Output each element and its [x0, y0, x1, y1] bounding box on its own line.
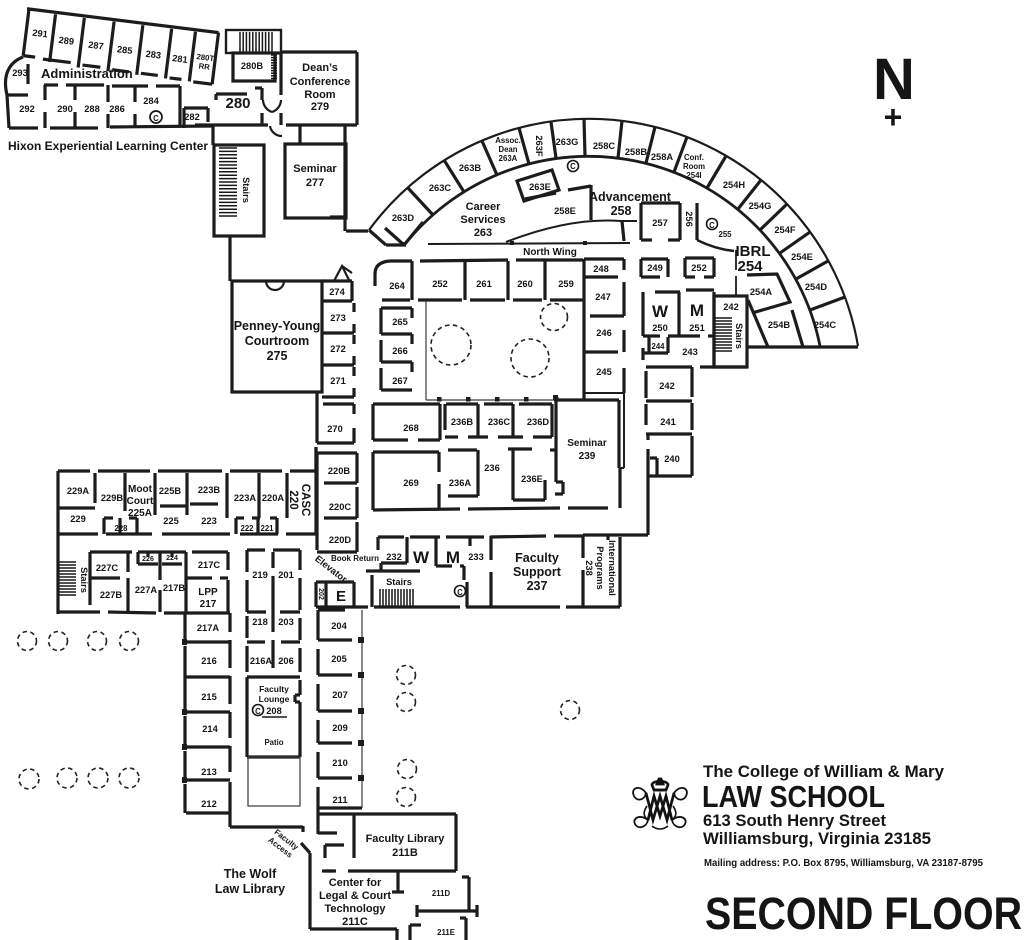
svg-text:205: 205	[331, 654, 347, 664]
svg-text:279: 279	[311, 101, 329, 113]
svg-text:Stairs: Stairs	[79, 567, 89, 593]
svg-text:281: 281	[172, 53, 189, 65]
svg-text:Court: Court	[127, 496, 154, 507]
svg-text:258: 258	[611, 204, 632, 218]
svg-text:Law Library: Law Library	[215, 882, 285, 896]
svg-text:258B: 258B	[625, 147, 648, 157]
svg-text:263F: 263F	[534, 135, 544, 157]
svg-text:217B: 217B	[163, 583, 186, 593]
svg-text:C: C	[457, 588, 463, 597]
svg-text:Room: Room	[683, 162, 705, 171]
svg-text:263C: 263C	[429, 183, 452, 193]
svg-text:229: 229	[70, 514, 86, 524]
svg-text:The Wolf: The Wolf	[224, 867, 277, 881]
svg-text:229B: 229B	[101, 493, 124, 503]
svg-text:254G: 254G	[749, 201, 772, 211]
svg-text:Moot: Moot	[128, 484, 153, 495]
svg-text:Room: Room	[304, 89, 335, 101]
svg-text:254A: 254A	[750, 287, 773, 297]
svg-text:280B: 280B	[241, 61, 264, 71]
svg-text:223A: 223A	[234, 493, 257, 503]
svg-text:224: 224	[166, 555, 178, 562]
svg-text:221: 221	[260, 524, 274, 533]
svg-text:213: 213	[201, 767, 217, 777]
svg-text:254: 254	[737, 258, 763, 275]
svg-text:Center for: Center for	[329, 877, 382, 889]
svg-text:258C: 258C	[593, 141, 616, 151]
svg-text:217A: 217A	[197, 623, 220, 633]
svg-text:280: 280	[225, 95, 250, 112]
svg-text:222: 222	[240, 524, 254, 533]
svg-text:244: 244	[651, 342, 665, 351]
svg-text:289: 289	[58, 35, 75, 47]
svg-text:217: 217	[200, 599, 217, 610]
svg-text:W: W	[413, 548, 430, 567]
svg-text:Conference: Conference	[290, 76, 351, 88]
svg-text:233: 233	[468, 552, 484, 562]
svg-text:SECOND FLOOR: SECOND FLOOR	[705, 888, 1022, 939]
svg-text:271: 271	[330, 376, 346, 386]
svg-text:Services: Services	[460, 214, 505, 226]
svg-text:270: 270	[327, 424, 343, 434]
svg-text:287: 287	[88, 40, 105, 52]
svg-text:254F: 254F	[774, 225, 796, 235]
svg-text:260: 260	[517, 279, 533, 289]
svg-text:C: C	[709, 221, 715, 230]
svg-text:236E: 236E	[521, 474, 543, 484]
svg-text:238: 238	[584, 560, 594, 576]
svg-text:225A: 225A	[128, 508, 152, 519]
svg-text:Faculty Library: Faculty Library	[366, 833, 446, 845]
svg-text:258A: 258A	[651, 152, 674, 162]
svg-text:RR: RR	[198, 61, 211, 71]
svg-text:292: 292	[19, 104, 35, 114]
svg-text:219: 219	[252, 570, 268, 580]
svg-text:227B: 227B	[100, 590, 123, 600]
svg-text:223: 223	[201, 516, 217, 526]
svg-text:C: C	[153, 114, 159, 123]
svg-text:211E: 211E	[437, 928, 455, 937]
svg-text:218: 218	[252, 617, 268, 627]
svg-text:217C: 217C	[198, 560, 221, 570]
svg-text:256: 256	[684, 211, 694, 227]
svg-text:Legal & Court: Legal & Court	[319, 890, 391, 902]
svg-text:212: 212	[201, 799, 217, 809]
svg-text:CASC: CASC	[299, 484, 311, 517]
svg-text:268: 268	[403, 423, 419, 433]
svg-text:Williamsburg, Virginia 23185: Williamsburg, Virginia 23185	[703, 830, 931, 848]
svg-text:283: 283	[145, 49, 162, 61]
svg-text:Administration: Administration	[41, 66, 133, 81]
svg-text:237: 237	[527, 579, 548, 593]
svg-text:261: 261	[476, 279, 492, 289]
svg-text:241: 241	[660, 417, 676, 427]
svg-text:264: 264	[389, 281, 405, 291]
svg-text:M: M	[446, 548, 460, 567]
svg-text:258E: 258E	[554, 206, 576, 216]
svg-text:228: 228	[114, 524, 128, 533]
svg-text:263E: 263E	[529, 182, 551, 192]
svg-text:LPP: LPP	[198, 587, 218, 598]
svg-text:Mailing address: P.O. Box 8795: Mailing address: P.O. Box 8795, Williams…	[704, 857, 983, 869]
svg-text:Stairs: Stairs	[386, 577, 412, 587]
svg-text:216A: 216A	[250, 656, 273, 666]
svg-text:246: 246	[596, 328, 612, 338]
svg-text:Faculty: Faculty	[259, 684, 289, 694]
svg-text:240: 240	[664, 454, 680, 464]
svg-text:220A: 220A	[262, 493, 285, 503]
svg-text:227C: 227C	[96, 563, 119, 573]
svg-text:290: 290	[57, 104, 73, 114]
svg-text:Dean: Dean	[498, 145, 517, 154]
svg-text:Seminar: Seminar	[567, 438, 607, 449]
svg-text:North Wing: North Wing	[523, 247, 577, 258]
svg-text:208: 208	[266, 706, 282, 716]
svg-text:220B: 220B	[328, 466, 351, 476]
svg-text:267: 267	[392, 376, 408, 386]
svg-text:229A: 229A	[67, 486, 90, 496]
svg-text:226: 226	[142, 556, 154, 563]
svg-text:254B: 254B	[768, 320, 791, 330]
svg-text:242: 242	[659, 381, 675, 391]
svg-text:+: +	[884, 99, 903, 135]
svg-text:204: 204	[331, 621, 347, 631]
svg-text:288: 288	[84, 104, 100, 114]
svg-text:211D: 211D	[432, 889, 451, 898]
svg-text:269: 269	[403, 478, 419, 488]
svg-text:International: International	[607, 540, 617, 596]
svg-text:Hixon Experiential Learning Ce: Hixon Experiential Learning Center	[8, 139, 208, 153]
svg-text:203: 203	[278, 617, 294, 627]
svg-text:266: 266	[392, 346, 408, 356]
svg-text:247: 247	[595, 292, 611, 302]
svg-text:216: 216	[201, 656, 217, 666]
svg-text:209: 209	[332, 723, 348, 733]
svg-text:236A: 236A	[449, 478, 472, 488]
svg-text:254H: 254H	[723, 180, 746, 190]
svg-text:225: 225	[163, 516, 179, 526]
svg-text:220C: 220C	[329, 502, 352, 512]
svg-text:Conf.: Conf.	[684, 153, 704, 162]
svg-text:Stairs: Stairs	[241, 177, 251, 203]
svg-text:265: 265	[392, 317, 408, 327]
svg-text:236D: 236D	[527, 417, 550, 427]
svg-text:202: 202	[317, 588, 324, 600]
svg-text:263D: 263D	[392, 213, 415, 223]
svg-text:275: 275	[267, 349, 288, 363]
svg-text:282: 282	[184, 112, 200, 122]
svg-text:Advancement: Advancement	[589, 190, 672, 204]
svg-text:Book Return: Book Return	[331, 554, 379, 563]
svg-text:Penney-Young: Penney-Young	[234, 319, 321, 333]
svg-text:293: 293	[12, 68, 28, 78]
svg-text:251: 251	[689, 323, 705, 333]
svg-text:243: 243	[682, 347, 698, 357]
svg-text:236B: 236B	[451, 417, 474, 427]
svg-text:257: 257	[652, 218, 668, 228]
svg-text:254C: 254C	[814, 320, 837, 330]
svg-text:254I: 254I	[686, 171, 701, 180]
svg-text:C: C	[255, 707, 261, 716]
svg-text:210: 210	[332, 758, 348, 768]
svg-text:211: 211	[333, 795, 348, 805]
svg-text:613 South Henry Street: 613 South Henry Street	[703, 812, 887, 830]
svg-text:263B: 263B	[459, 163, 482, 173]
svg-text:Support: Support	[513, 565, 562, 579]
svg-text:250: 250	[652, 323, 668, 333]
svg-text:Career: Career	[466, 201, 502, 213]
svg-text:220: 220	[287, 490, 299, 509]
svg-text:245: 245	[596, 367, 612, 377]
svg-text:286: 286	[109, 104, 125, 114]
svg-text:207: 207	[332, 690, 348, 700]
svg-text:C: C	[570, 162, 576, 171]
svg-text:272: 272	[330, 344, 346, 354]
svg-text:285: 285	[116, 44, 133, 56]
svg-text:LAW SCHOOL: LAW SCHOOL	[702, 779, 885, 814]
svg-text:211C: 211C	[342, 916, 368, 928]
svg-text:291: 291	[32, 28, 49, 40]
svg-text:236: 236	[484, 463, 500, 473]
svg-text:223B: 223B	[198, 485, 221, 495]
svg-text:Assoc.: Assoc.	[495, 136, 521, 145]
svg-text:255: 255	[718, 230, 732, 239]
svg-text:273: 273	[330, 313, 346, 323]
svg-text:211B: 211B	[392, 847, 418, 859]
svg-text:263A: 263A	[499, 154, 518, 163]
svg-text:242: 242	[723, 302, 739, 312]
svg-text:214: 214	[202, 724, 218, 734]
svg-text:236C: 236C	[488, 417, 511, 427]
svg-text:Patio: Patio	[264, 738, 283, 747]
svg-text:220D: 220D	[329, 535, 352, 545]
svg-text:263G: 263G	[556, 137, 579, 147]
svg-text:W: W	[652, 302, 669, 321]
svg-text:225B: 225B	[159, 486, 182, 496]
svg-text:259: 259	[558, 279, 574, 289]
svg-text:284: 284	[143, 96, 159, 106]
svg-text:Seminar: Seminar	[293, 163, 337, 175]
svg-text:Dean’s: Dean’s	[302, 62, 338, 74]
svg-text:Lounge: Lounge	[259, 694, 290, 704]
svg-text:232: 232	[386, 552, 402, 562]
svg-text:215: 215	[201, 692, 217, 702]
svg-text:Faculty: Faculty	[515, 551, 559, 565]
svg-text:277: 277	[306, 177, 324, 189]
svg-text:Programs: Programs	[595, 546, 605, 589]
svg-text:M: M	[690, 301, 704, 320]
svg-text:254E: 254E	[791, 252, 813, 262]
svg-text:249: 249	[647, 263, 663, 273]
svg-text:E: E	[336, 588, 346, 605]
svg-text:206: 206	[278, 656, 294, 666]
svg-text:254D: 254D	[805, 282, 828, 292]
svg-text:201: 201	[278, 570, 294, 580]
svg-text:227A: 227A	[135, 585, 158, 595]
svg-text:263: 263	[474, 227, 492, 239]
svg-text:Stairs: Stairs	[734, 323, 744, 349]
svg-text:248: 248	[593, 264, 609, 274]
svg-text:Technology: Technology	[325, 903, 387, 915]
svg-text:Courtroom: Courtroom	[245, 334, 310, 348]
svg-text:239: 239	[579, 451, 596, 462]
svg-text:274: 274	[329, 287, 345, 297]
svg-text:252: 252	[691, 263, 707, 273]
svg-text:252: 252	[432, 279, 448, 289]
